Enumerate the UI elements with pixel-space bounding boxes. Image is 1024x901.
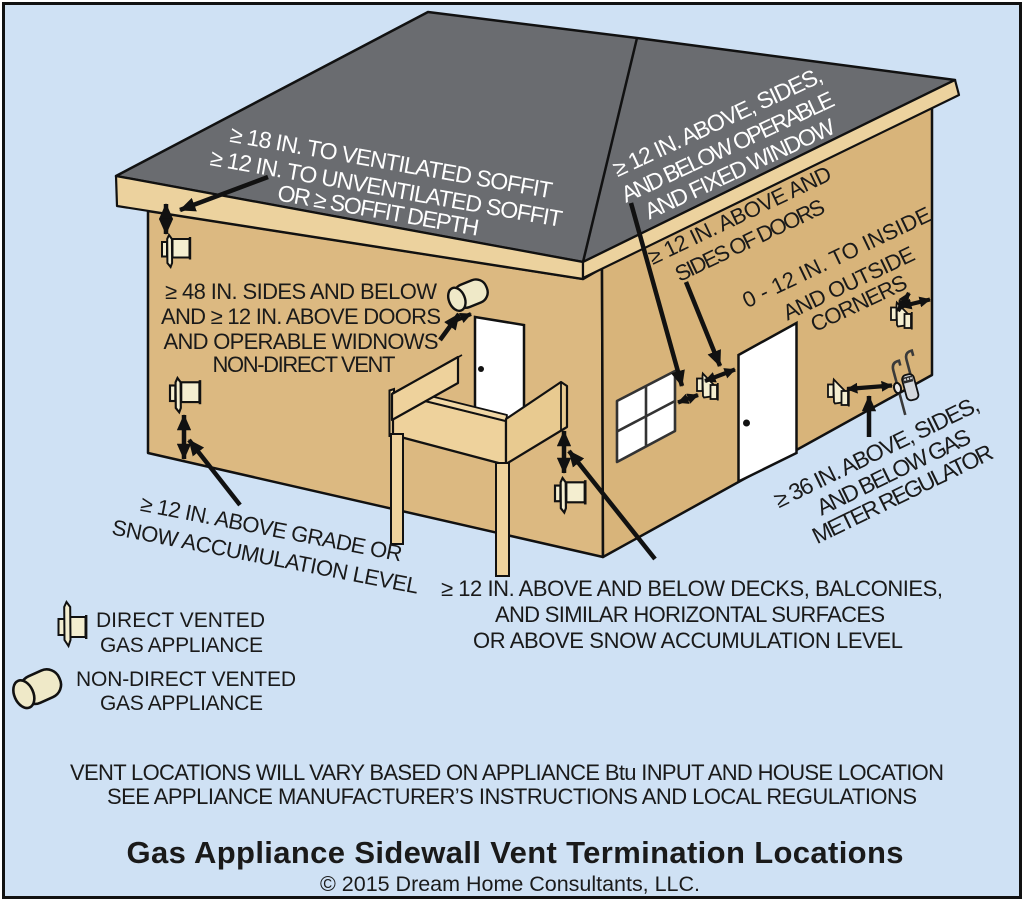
svg-text:AND OPERABLE WIDNOWS: AND OPERABLE WIDNOWS [164, 329, 439, 354]
svg-text:GAS APPLIANCE: GAS APPLIANCE [100, 692, 263, 715]
svg-text:NON-DIRECT VENTED: NON-DIRECT VENTED [76, 668, 296, 691]
svg-text:VENT LOCATIONS WILL VARY BASED: VENT LOCATIONS WILL VARY BASED ON APPLIA… [70, 760, 944, 785]
svg-text:≥ 12 IN. ABOVE AND BELOW DECKS: ≥ 12 IN. ABOVE AND BELOW DECKS, BALCONIE… [441, 576, 943, 601]
svg-text:≥ 48 IN. SIDES AND BELOW: ≥ 48 IN. SIDES AND BELOW [165, 279, 437, 304]
svg-text:GAS APPLIANCE: GAS APPLIANCE [100, 634, 263, 657]
svg-text:© 2015 Dream Home Consultants,: © 2015 Dream Home Consultants, LLC. [320, 872, 700, 896]
svg-text:Gas Appliance Sidewall Vent Te: Gas Appliance Sidewall Vent Termination … [127, 835, 904, 870]
svg-text:AND SIMILAR HORIZONTAL SURFACE: AND SIMILAR HORIZONTAL SURFACES [495, 602, 885, 627]
svg-text:NON-DIRECT VENT: NON-DIRECT VENT [213, 352, 396, 377]
svg-text:OR ABOVE SNOW ACCUMULATION LEV: OR ABOVE SNOW ACCUMULATION LEVEL [473, 628, 903, 653]
svg-text:SEE APPLIANCE MANUFACTURER’S I: SEE APPLIANCE MANUFACTURER’S INSTRUCTION… [107, 784, 917, 809]
svg-text:DIRECT VENTED: DIRECT VENTED [96, 609, 265, 632]
svg-text:AND ≥ 12 IN. ABOVE DOORS: AND ≥ 12 IN. ABOVE DOORS [161, 304, 441, 329]
